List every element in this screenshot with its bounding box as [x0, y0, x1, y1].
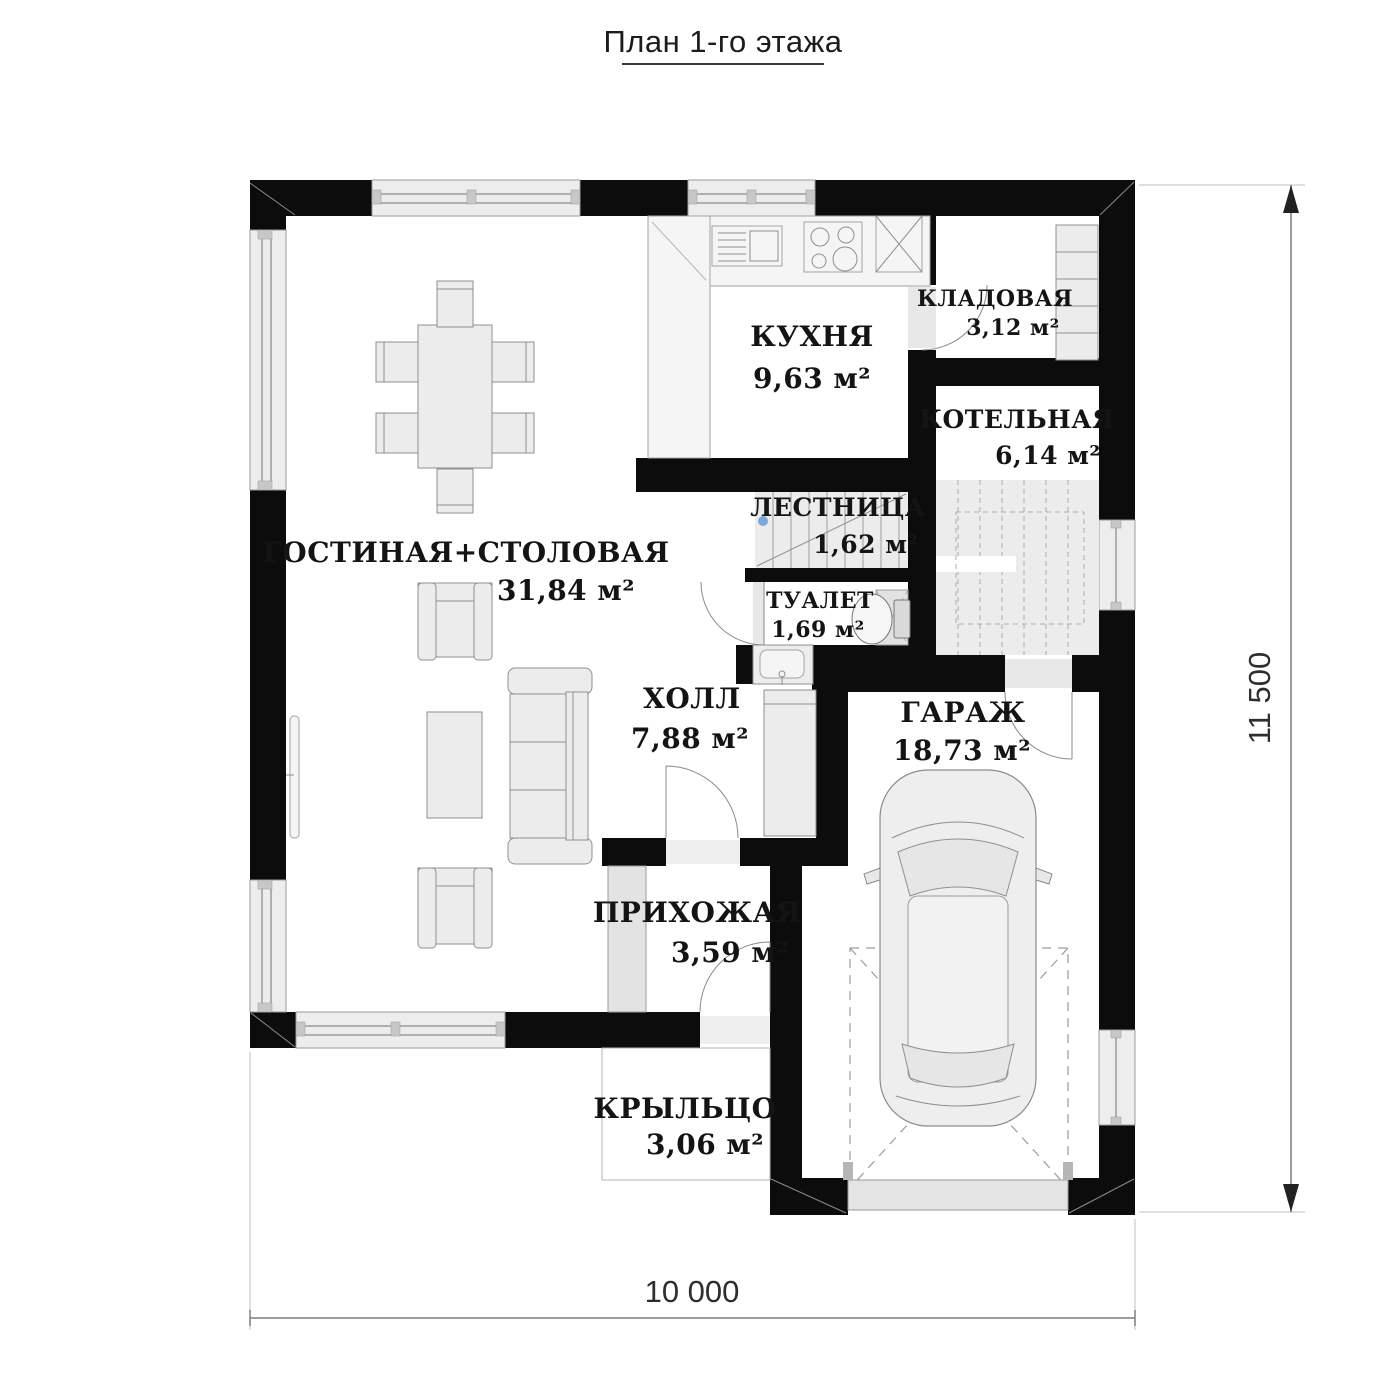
room-label-kitchen: КУХНЯ	[750, 320, 874, 353]
dimension-arrow-top	[1283, 185, 1299, 213]
room-area-living: 31,84 м²	[497, 574, 635, 607]
armchair-bottom	[418, 868, 492, 948]
wardrobe	[764, 690, 816, 836]
room-area-hall: 7,88 м²	[631, 722, 749, 755]
window-right-boiler	[1099, 520, 1135, 610]
room-label-boiler: КОТЕЛЬНАЯ	[919, 405, 1114, 434]
room-area-toilet: 1,69 м²	[771, 617, 865, 643]
room-area-boiler: 6,14 м²	[995, 441, 1101, 470]
room-label-garage: ГАРАЖ	[900, 696, 1025, 729]
plan-title: План 1-го этажа	[603, 24, 842, 64]
room-label-hall: ХОЛЛ	[643, 682, 741, 715]
window-top-living	[372, 180, 580, 216]
room-label-toilet: ТУАЛЕТ	[766, 588, 874, 614]
toilet-tank	[894, 600, 910, 638]
garage-door-post-right	[1063, 1162, 1073, 1180]
garage-door	[848, 1180, 1068, 1210]
room-area-stairs: 1,62 м²	[813, 530, 919, 559]
counter-left-return	[648, 216, 710, 458]
dimension-arrow-bottom	[1283, 1184, 1299, 1212]
car-mirror-left	[864, 868, 880, 884]
window-top-kitchen	[688, 180, 815, 216]
room-area-kitchen: 9,63 м²	[753, 362, 871, 395]
room-label-pantry: КЛАДОВАЯ	[917, 286, 1073, 312]
room-area-garage: 18,73 м²	[893, 734, 1031, 767]
sofa	[508, 668, 592, 864]
garage-door-post-left	[843, 1162, 853, 1180]
stair-cut-gap	[936, 556, 1016, 572]
tv	[286, 716, 299, 838]
car-mirror-right	[1036, 868, 1052, 884]
room-label-stairs: ЛЕСТНИЦА	[750, 493, 926, 522]
living-furniture	[286, 583, 592, 948]
car-windshield	[898, 839, 1018, 896]
dishwasher-sink-unit	[712, 226, 782, 266]
dimension-right: 11 500	[1139, 185, 1305, 1212]
floor-plan-canvas: План 1-го этажа	[0, 0, 1400, 1400]
threshold-toilet	[753, 582, 764, 645]
threshold-boiler	[1005, 659, 1072, 688]
window-right-garage	[1099, 1030, 1135, 1125]
threshold-hall	[666, 840, 740, 864]
room-area-porch: 3,06 м²	[646, 1128, 764, 1161]
room-area-entry: 3,59 м²	[671, 936, 789, 969]
garage	[843, 770, 1073, 1210]
coffee-table	[427, 712, 482, 818]
car	[864, 770, 1052, 1126]
door-arc-hall	[666, 766, 738, 838]
floor-plan-page: План 1-го этажа	[0, 0, 1400, 1400]
light-partition	[608, 866, 646, 1012]
room-label-entry: ПРИХОЖАЯ	[593, 896, 801, 929]
dining-table	[418, 325, 492, 468]
sink-unit	[753, 645, 813, 685]
dining-set	[376, 281, 534, 513]
window-bottom-living	[296, 1012, 505, 1048]
fridge-unit	[876, 216, 922, 272]
extension-lines-right	[1139, 185, 1305, 1212]
page-title: План 1-го этажа	[603, 24, 842, 59]
window-left-upper	[250, 230, 286, 490]
dimension-line-bottom	[250, 1310, 1135, 1326]
room-label-porch: КРЫЛЬЦО	[594, 1092, 777, 1125]
armchair-top	[418, 583, 492, 660]
dimension-width-label: 10 000	[645, 1274, 740, 1309]
room-area-pantry: 3,12 м²	[966, 315, 1060, 341]
room-label-living: ГОСТИНАЯ+СТОЛОВАЯ	[262, 536, 669, 569]
stairs-upper-dashed	[936, 480, 1099, 655]
cooktop	[804, 222, 862, 272]
dimension-height-label: 11 500	[1242, 652, 1277, 745]
threshold-entrance	[700, 1016, 770, 1044]
window-left-lower	[250, 880, 286, 1012]
